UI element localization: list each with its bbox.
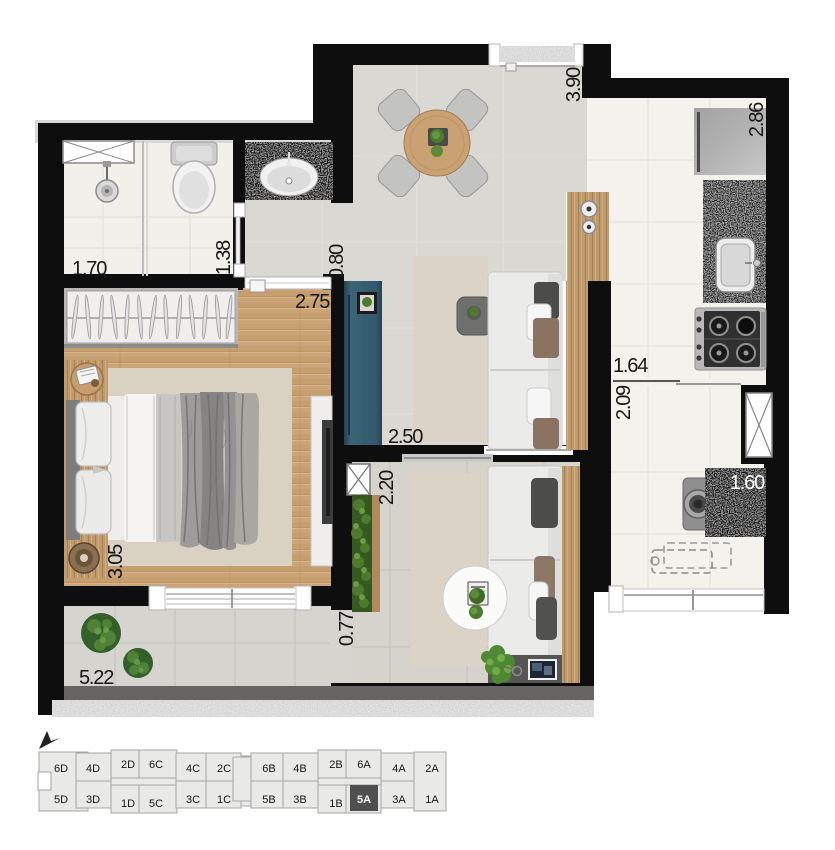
svg-text:3A: 3A bbox=[392, 794, 406, 806]
svg-text:1.70: 1.70 bbox=[72, 258, 107, 280]
svg-text:1.60: 1.60 bbox=[730, 472, 765, 494]
svg-text:4C: 4C bbox=[186, 763, 200, 775]
svg-text:6A: 6A bbox=[357, 759, 371, 771]
svg-text:3.05: 3.05 bbox=[105, 544, 127, 579]
svg-text:0.77: 0.77 bbox=[336, 611, 358, 646]
svg-text:1.64: 1.64 bbox=[613, 355, 648, 377]
svg-text:4D: 4D bbox=[86, 763, 100, 775]
svg-text:6B: 6B bbox=[262, 763, 275, 775]
svg-text:1A: 1A bbox=[425, 794, 439, 806]
svg-text:6C: 6C bbox=[149, 759, 163, 771]
svg-text:4A: 4A bbox=[392, 763, 406, 775]
svg-text:0.80: 0.80 bbox=[326, 244, 348, 279]
svg-text:6D: 6D bbox=[54, 763, 68, 775]
svg-text:3B: 3B bbox=[293, 794, 306, 806]
svg-text:5D: 5D bbox=[54, 794, 68, 806]
svg-text:3C: 3C bbox=[186, 794, 200, 806]
svg-text:2.75: 2.75 bbox=[295, 291, 330, 313]
svg-text:1B: 1B bbox=[329, 798, 342, 810]
svg-text:2.20: 2.20 bbox=[376, 470, 398, 505]
svg-text:3D: 3D bbox=[86, 794, 100, 806]
svg-text:1.38: 1.38 bbox=[213, 240, 235, 275]
svg-text:2A: 2A bbox=[425, 763, 439, 775]
svg-text:5B: 5B bbox=[262, 794, 275, 806]
svg-text:5.22: 5.22 bbox=[79, 667, 114, 689]
svg-text:5A: 5A bbox=[357, 794, 371, 806]
svg-text:2.09: 2.09 bbox=[613, 385, 635, 420]
svg-text:2B: 2B bbox=[329, 759, 342, 771]
svg-text:2C: 2C bbox=[217, 763, 231, 775]
svg-text:5C: 5C bbox=[149, 798, 163, 810]
svg-text:2.86: 2.86 bbox=[746, 102, 768, 137]
svg-text:1C: 1C bbox=[217, 794, 231, 806]
svg-text:2.50: 2.50 bbox=[388, 426, 423, 448]
svg-text:2D: 2D bbox=[121, 759, 135, 771]
svg-text:4B: 4B bbox=[293, 763, 306, 775]
svg-text:1D: 1D bbox=[121, 798, 135, 810]
svg-text:3.90: 3.90 bbox=[563, 67, 585, 102]
